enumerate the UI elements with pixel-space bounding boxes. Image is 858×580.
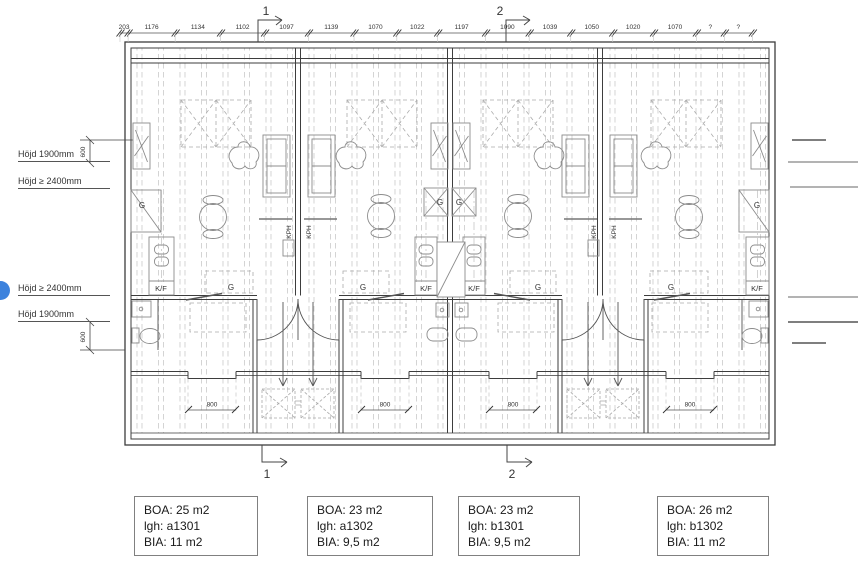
kph-label: KPH <box>286 225 293 239</box>
unit-boa: BOA: 23 m2 <box>317 503 423 517</box>
top-dimension-value: 1070 <box>368 24 383 31</box>
wardrobe-label: G <box>139 201 145 210</box>
fridge-freezer-label: K/F <box>468 284 480 293</box>
section-marker-top-1: 1 <box>263 4 270 18</box>
wardrobe-label: G <box>754 201 760 210</box>
fridge-freezer-label: K/F <box>751 284 763 293</box>
kph-label: KPH <box>611 225 618 239</box>
window-width-dimension: 800 <box>380 402 391 409</box>
height-label-2400-lower: Höjd ≥ 2400mm <box>18 283 110 296</box>
right-reference-lines <box>788 140 858 343</box>
top-dimension-value: 1039 <box>543 24 558 31</box>
unit-boa: BOA: 26 m2 <box>667 503 759 517</box>
top-dimension-value: ? <box>709 24 713 31</box>
top-dimension-value: 1070 <box>668 24 683 31</box>
unit-info-box-b1301: BOA: 23 m2 lgh: b1301 BIA: 9,5 m2 <box>458 496 580 556</box>
unit-boa: BOA: 25 m2 <box>144 503 248 517</box>
window-width-dimension: 800 <box>685 402 696 409</box>
top-dimension-value: 1197 <box>455 24 469 31</box>
unit-bia: BIA: 9,5 m2 <box>317 535 423 549</box>
wardrobe-label: G <box>228 283 234 292</box>
unit-info-box-b1302: BOA: 26 m2 lgh: b1302 BIA: 11 m2 <box>657 496 769 556</box>
unit-lgh: lgh: a1301 <box>144 519 248 533</box>
top-dimension-value: 203 <box>119 24 130 31</box>
fridge-freezer-label: K/F <box>420 284 432 293</box>
top-dimension-value: 1090 <box>500 24 515 31</box>
unit-bia: BIA: 11 m2 <box>667 535 759 549</box>
top-dimension-value: 1134 <box>191 24 205 31</box>
top-dimension-value: 1139 <box>324 24 338 31</box>
wardrobe-label: G <box>360 283 366 292</box>
section-marker-bottom-2: 2 <box>509 467 516 481</box>
top-dimension-value: 1176 <box>145 24 159 31</box>
floor-plan-sheet: 600 600 1 2 1 2 203117611341102109711391… <box>0 0 858 580</box>
height-label-2400-upper: Höjd ≥ 2400mm <box>18 176 110 189</box>
dimension-string: 2031176113411021097113910701022119710901… <box>117 24 757 42</box>
unit-lgh: lgh: a1302 <box>317 519 423 533</box>
floor-plan-drawing: 600 600 1 2 1 2 203117611341102109711391… <box>0 0 858 580</box>
section-marker-top-2: 2 <box>497 4 504 18</box>
kph-label: KPH <box>591 225 598 239</box>
unit-info-box-a1301: BOA: 25 m2 lgh: a1301 BIA: 11 m2 <box>134 496 258 556</box>
top-dimension-value: 1050 <box>585 24 600 31</box>
top-dimension-value: 1020 <box>626 24 641 31</box>
unit-info-box-a1302: BOA: 23 m2 lgh: a1302 BIA: 9,5 m2 <box>307 496 433 556</box>
wardrobe-label: G <box>456 198 462 207</box>
wardrobe-label: G <box>437 198 443 207</box>
kph-label: KPH <box>306 225 313 239</box>
fridge-freezer-label: K/F <box>155 284 167 293</box>
height-label-1900-lower: Höjd 1900mm <box>18 309 110 322</box>
top-dimension-value: ? <box>737 24 741 31</box>
window-width-dimension: 800 <box>508 402 519 409</box>
unit-boa: BOA: 23 m2 <box>468 503 570 517</box>
section-marker-bottom-1: 1 <box>264 467 271 481</box>
wardrobe-label: G <box>668 283 674 292</box>
unit-lgh: lgh: b1301 <box>468 519 570 533</box>
unit-bia: BIA: 9,5 m2 <box>468 535 570 549</box>
unit-bia: BIA: 11 m2 <box>144 535 248 549</box>
unit-lgh: lgh: b1302 <box>667 519 759 533</box>
vertical-dim-600-lower: 600 <box>80 331 87 342</box>
top-dimension-value: 1097 <box>279 24 294 31</box>
top-dimension-value: 1102 <box>236 24 250 31</box>
top-dimension-value: 1022 <box>410 24 425 31</box>
height-label-1900-upper: Höjd 1900mm <box>18 149 110 162</box>
window-width-dimension: 800 <box>207 402 218 409</box>
wardrobe-label: G <box>535 283 541 292</box>
